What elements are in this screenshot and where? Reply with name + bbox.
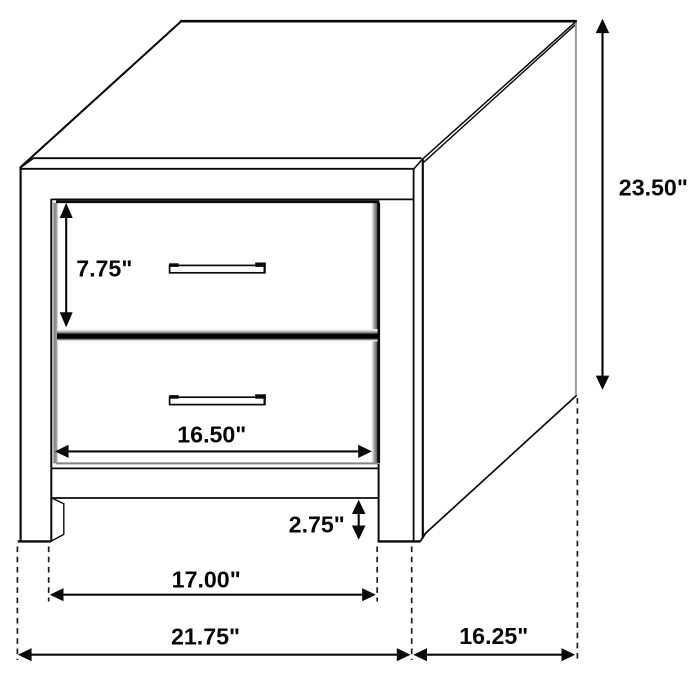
svg-text:16.25": 16.25" (459, 623, 528, 649)
svg-text:2.75": 2.75" (289, 511, 345, 537)
svg-text:7.75": 7.75" (76, 255, 132, 281)
svg-text:23.50": 23.50" (619, 175, 688, 201)
svg-text:21.75": 21.75" (171, 624, 240, 650)
svg-text:17.00": 17.00" (172, 567, 241, 593)
svg-text:16.50": 16.50" (177, 421, 246, 447)
